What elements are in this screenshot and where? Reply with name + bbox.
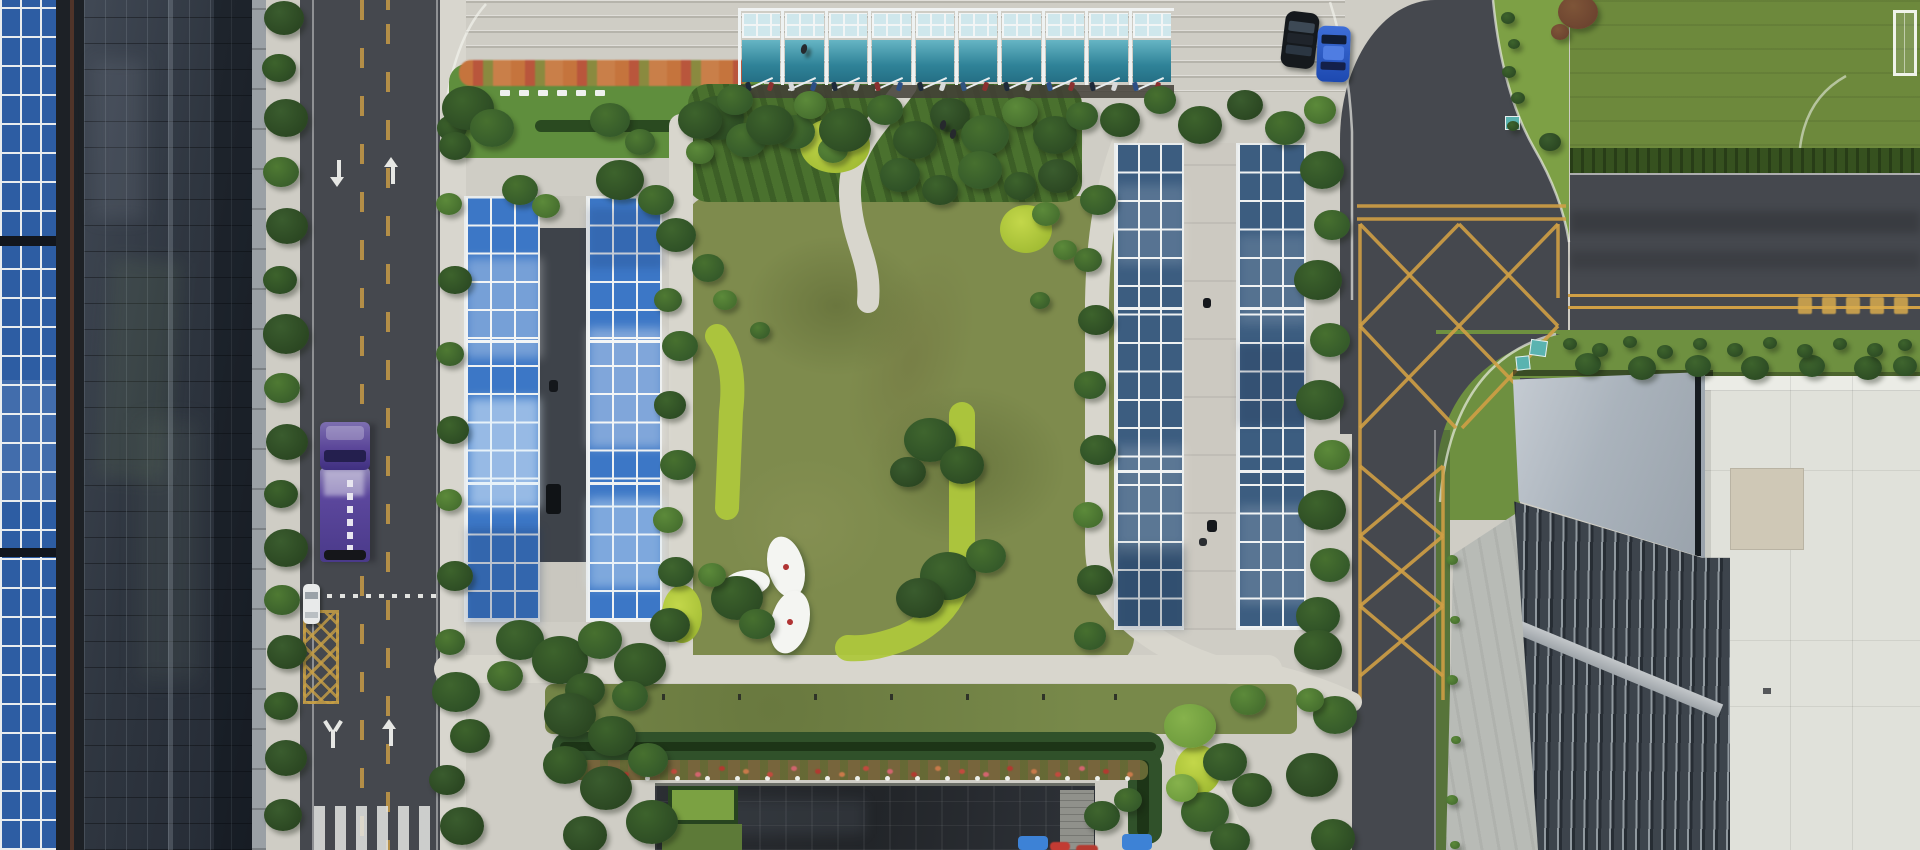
- car-rear-window: [305, 612, 318, 618]
- roof-top-band: [1705, 376, 1920, 391]
- blue-tarp: [1122, 834, 1152, 850]
- blue-tarp: [1018, 836, 1048, 850]
- car-windshield: [1321, 35, 1346, 45]
- carport-aisle-west: [540, 196, 586, 622]
- shelter-bay: [738, 11, 781, 85]
- shelter-clerestory-pane: [1089, 13, 1127, 38]
- red-flower-patch: [1050, 842, 1070, 850]
- cab-roof-highlight: [326, 426, 364, 440]
- white-car: [303, 584, 320, 624]
- aisle-asphalt: [540, 228, 586, 562]
- south-lawn-strip: [545, 684, 1297, 734]
- truck-trailer: [320, 468, 370, 562]
- shelter-clerestory-pane: [1133, 13, 1171, 38]
- shelter-bay: [825, 11, 868, 85]
- shelter-clerestory-pane: [829, 13, 867, 38]
- se-white-roof: [1705, 376, 1920, 850]
- shelter-teal-glass: [742, 40, 780, 82]
- utility-cover-teal: [1505, 116, 1520, 130]
- roof-joint: [1852, 376, 1853, 850]
- shelter-bay: [1085, 11, 1128, 85]
- trailer-lettering: [347, 480, 353, 556]
- blue-car: [1316, 25, 1351, 82]
- aerial-campus-photo: [0, 0, 1920, 850]
- shelter-teal-glass: [959, 40, 997, 82]
- carport-walkway-east: [1184, 143, 1236, 630]
- shelter-clerestory-pane: [1002, 13, 1040, 38]
- path-north-winding: [850, 86, 906, 302]
- roof-joint: [1705, 706, 1920, 707]
- red-flower-patch: [1076, 845, 1098, 850]
- roof-joint: [1790, 376, 1791, 850]
- purple-truck: [318, 422, 376, 564]
- shelter-clerestory-pane: [959, 13, 997, 38]
- shelter-teal-glass: [1046, 40, 1084, 82]
- shelter-bay: [868, 11, 911, 85]
- shelter-teal-glass: [1089, 40, 1127, 82]
- shelter-clerestory-pane: [742, 13, 780, 38]
- roof-inset-panel: [1730, 468, 1804, 550]
- pavilion-steps: [1060, 790, 1094, 850]
- car-roof: [1287, 32, 1314, 45]
- car-windshield: [305, 592, 318, 599]
- plot-grass: [662, 824, 742, 850]
- shelter-teal-glass: [916, 40, 954, 82]
- shelter-clerestory-pane: [1046, 13, 1084, 38]
- trailer-highlight: [324, 470, 364, 496]
- car-rear-window: [1285, 44, 1312, 56]
- hedge-inner-dark: [560, 742, 1156, 751]
- chartreuse-hedge-east: [848, 415, 962, 648]
- roof-vent: [1763, 688, 1771, 694]
- shelter-clerestory-pane: [916, 13, 954, 38]
- roof-dark-stripe: [1695, 376, 1701, 556]
- shelter-clerestory-pane: [872, 13, 910, 38]
- car-roof: [1323, 46, 1344, 61]
- truck-wheels: [324, 550, 366, 560]
- shelter-bay: [1042, 11, 1085, 85]
- utility-cover-teal: [1529, 339, 1548, 357]
- shelter-bay: [1129, 11, 1172, 85]
- truck-cab: [320, 422, 370, 470]
- shelter-clerestory-pane: [785, 13, 823, 38]
- facade-diagonal-band: [1505, 617, 1723, 718]
- chartreuse-hedge-west: [717, 336, 732, 508]
- shelter-bay: [912, 11, 955, 85]
- car-rear-window: [1320, 62, 1345, 71]
- shelter-teal-glass: [872, 40, 910, 82]
- shelter-bay: [955, 11, 998, 85]
- black-car: [1280, 10, 1321, 70]
- south-flower-band: [560, 760, 1148, 780]
- shelter-teal-glass: [829, 40, 867, 82]
- canopy-shadow-band: [738, 85, 1174, 98]
- roof-joint: [1705, 640, 1920, 641]
- car-windshield: [1288, 21, 1315, 34]
- cab-windshield: [324, 450, 366, 462]
- utility-cover-teal: [1515, 355, 1530, 370]
- hedge-plot: [668, 786, 738, 824]
- shelter-teal-glass: [1002, 40, 1040, 82]
- shelter-teal-glass: [1133, 40, 1171, 82]
- shelter-bay: [998, 11, 1041, 85]
